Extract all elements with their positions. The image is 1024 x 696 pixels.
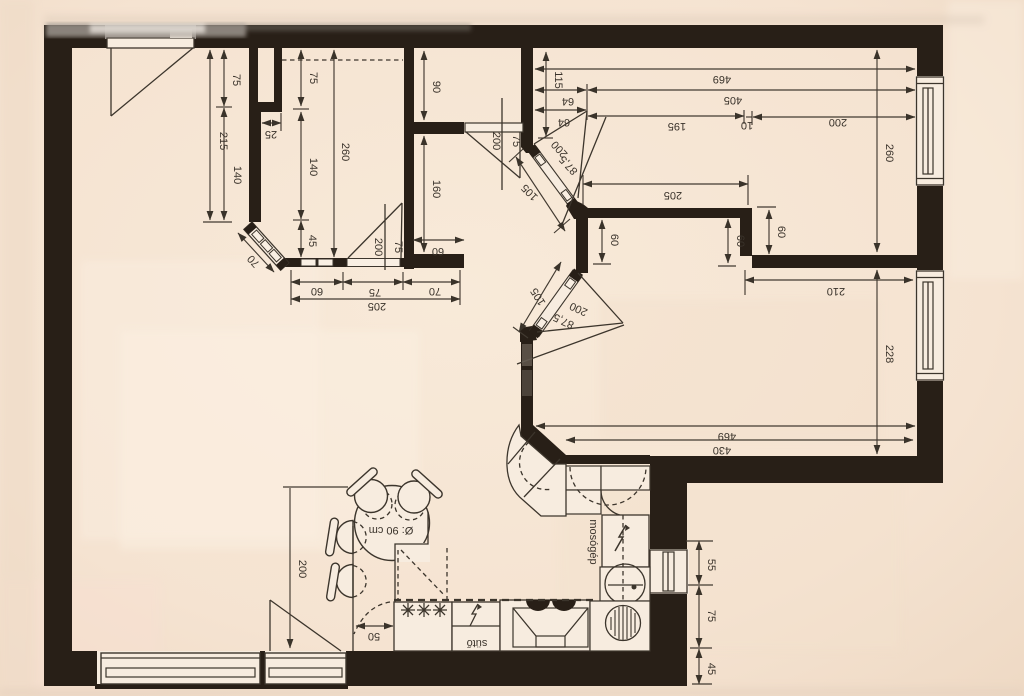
- svg-text:200: 200: [372, 238, 384, 256]
- svg-text:sütő: sütő: [467, 637, 488, 649]
- svg-text:64: 64: [558, 116, 570, 128]
- svg-text:75: 75: [392, 241, 404, 253]
- svg-text:75: 75: [307, 72, 319, 84]
- svg-text:205: 205: [368, 300, 386, 312]
- svg-text:195: 195: [668, 120, 686, 132]
- svg-text:55: 55: [705, 559, 717, 571]
- svg-text:430: 430: [713, 444, 731, 456]
- svg-text:60: 60: [734, 235, 746, 247]
- svg-text:mosógép: mosógép: [587, 519, 599, 564]
- svg-text:75: 75: [705, 610, 717, 622]
- svg-text:405: 405: [724, 94, 742, 106]
- svg-text:60: 60: [608, 234, 620, 246]
- svg-text:210: 210: [827, 285, 845, 297]
- svg-text:140: 140: [231, 166, 243, 184]
- svg-text:25: 25: [265, 128, 277, 140]
- svg-text:10: 10: [741, 119, 753, 131]
- svg-text:75: 75: [510, 135, 522, 147]
- svg-text:45: 45: [705, 663, 717, 675]
- svg-text:70: 70: [429, 285, 441, 297]
- svg-text:Ø: 90 cm: Ø: 90 cm: [369, 524, 414, 536]
- svg-text:75: 75: [369, 286, 381, 298]
- svg-text:60: 60: [775, 226, 787, 238]
- svg-text:228: 228: [883, 345, 895, 363]
- svg-text:260: 260: [339, 143, 351, 161]
- svg-text:469: 469: [713, 73, 731, 85]
- svg-text:200: 200: [296, 560, 308, 578]
- svg-text:90: 90: [430, 81, 442, 93]
- svg-text:205: 205: [664, 189, 682, 201]
- svg-text:60: 60: [432, 245, 444, 257]
- svg-text:200: 200: [490, 132, 502, 150]
- svg-text:64: 64: [562, 95, 574, 107]
- svg-text:115: 115: [552, 71, 564, 89]
- svg-text:200: 200: [829, 116, 847, 128]
- svg-text:160: 160: [430, 180, 442, 198]
- svg-text:260: 260: [883, 144, 895, 162]
- svg-text:60: 60: [311, 285, 323, 297]
- svg-text:50: 50: [368, 630, 380, 642]
- svg-text:215: 215: [217, 132, 229, 150]
- svg-text:45: 45: [306, 235, 318, 247]
- svg-text:140: 140: [307, 158, 319, 176]
- svg-text:75: 75: [230, 74, 242, 86]
